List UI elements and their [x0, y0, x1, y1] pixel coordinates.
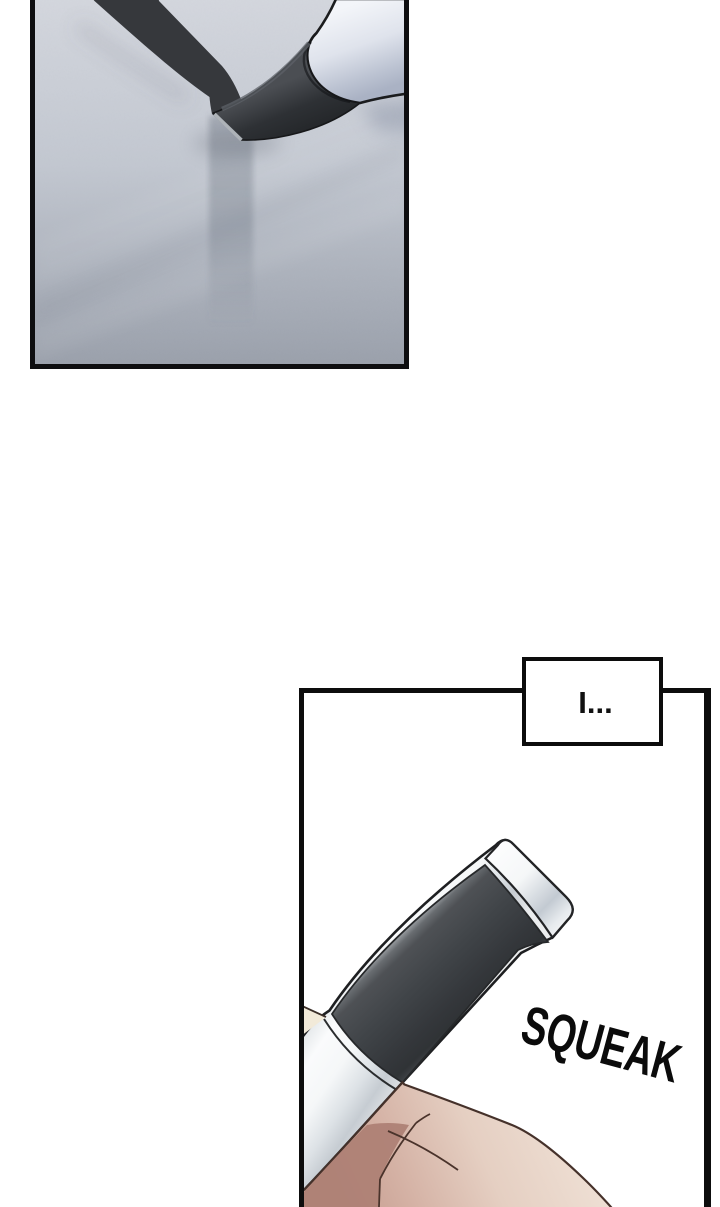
svg-text:SQUEAK: SQUEAK [516, 994, 688, 1094]
